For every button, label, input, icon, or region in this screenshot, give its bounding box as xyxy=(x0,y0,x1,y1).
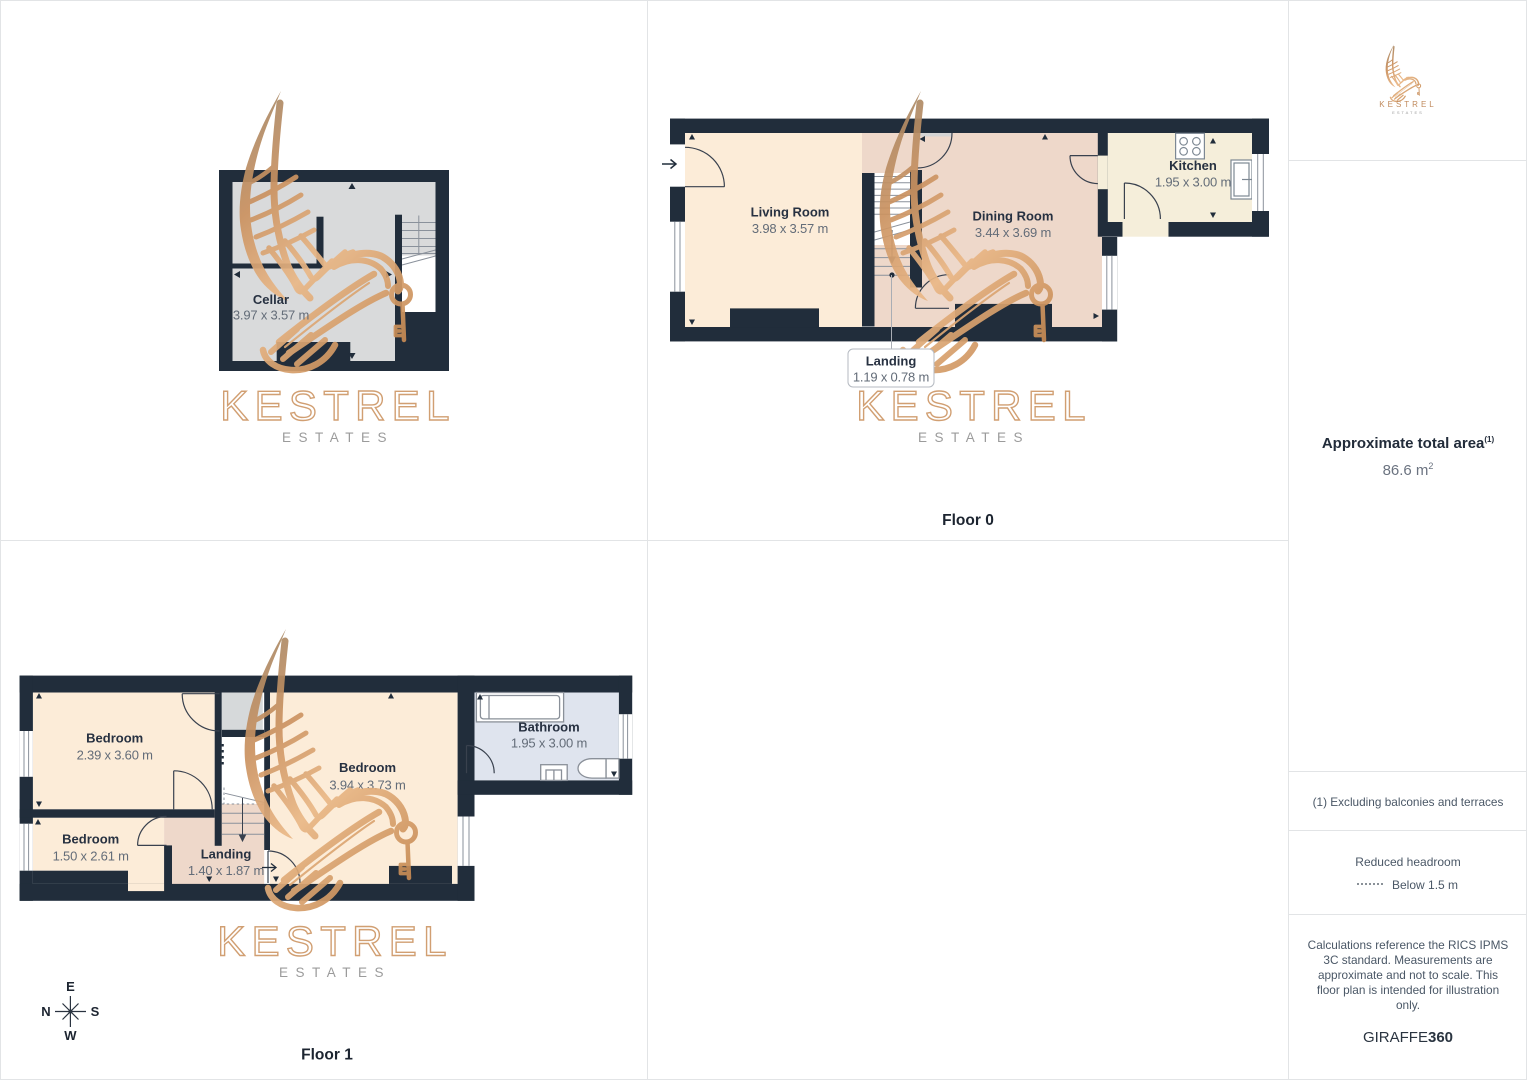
svg-text:Dining Room: Dining Room xyxy=(973,209,1054,224)
svg-text:E: E xyxy=(66,979,75,994)
svg-text:S: S xyxy=(91,1004,100,1019)
svg-text:Bedroom: Bedroom xyxy=(62,832,119,847)
svg-text:Landing: Landing xyxy=(201,847,252,862)
svg-text:Floor 1: Floor 1 xyxy=(301,1047,353,1064)
svg-text:1.95 x 3.00 m: 1.95 x 3.00 m xyxy=(1155,175,1231,190)
svg-text:1.40 x 1.87 m: 1.40 x 1.87 m xyxy=(188,863,264,878)
svg-text:Kitchen: Kitchen xyxy=(1169,158,1217,173)
svg-text:KESTREL: KESTREL xyxy=(217,918,453,965)
svg-text:KESTREL: KESTREL xyxy=(856,382,1092,429)
svg-text:3.97 x 3.57 m: 3.97 x 3.57 m xyxy=(233,308,309,323)
svg-text:1.95 x 3.00 m: 1.95 x 3.00 m xyxy=(511,736,587,751)
svg-text:Landing: Landing xyxy=(866,354,917,369)
svg-text:1.50 x 2.61 m: 1.50 x 2.61 m xyxy=(53,849,129,864)
svg-text:KESTREL: KESTREL xyxy=(220,382,456,429)
svg-text:Cellar: Cellar xyxy=(253,292,289,307)
svg-text:ESTATES: ESTATES xyxy=(918,430,1030,445)
svg-text:Bedroom: Bedroom xyxy=(339,760,396,775)
svg-text:3.44 x 3.69 m: 3.44 x 3.69 m xyxy=(975,225,1051,240)
svg-text:Bedroom: Bedroom xyxy=(86,731,143,746)
svg-text:Floor 0: Floor 0 xyxy=(942,512,994,529)
svg-text:3.98 x 3.57 m: 3.98 x 3.57 m xyxy=(752,221,828,236)
svg-text:W: W xyxy=(64,1028,77,1043)
svg-text:ESTATES: ESTATES xyxy=(282,430,394,445)
svg-text:Bathroom: Bathroom xyxy=(518,720,579,735)
svg-text:N: N xyxy=(41,1004,50,1019)
svg-text:ESTATES: ESTATES xyxy=(279,965,391,980)
svg-text:Living Room: Living Room xyxy=(751,205,830,220)
svg-text:2.39 x 3.60 m: 2.39 x 3.60 m xyxy=(77,748,153,763)
